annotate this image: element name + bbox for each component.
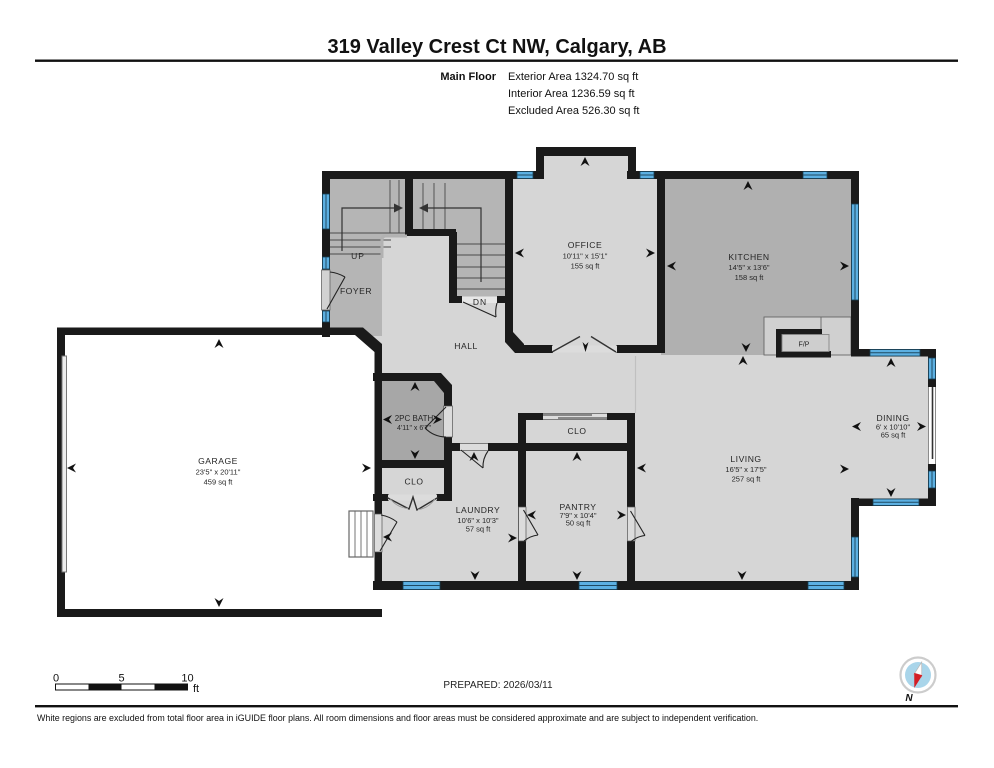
svg-text:FOYER: FOYER — [340, 286, 372, 296]
svg-text:LAUNDRY: LAUNDRY — [456, 505, 500, 515]
svg-text:10'11" x 15'1": 10'11" x 15'1" — [563, 252, 608, 261]
svg-text:319 Valley Crest Ct NW, Calgar: 319 Valley Crest Ct NW, Calgary, AB — [327, 36, 666, 58]
svg-text:DINING: DINING — [876, 413, 909, 423]
svg-text:459 sq ft: 459 sq ft — [204, 478, 234, 487]
svg-text:23'5" x 20'11": 23'5" x 20'11" — [196, 468, 241, 477]
svg-text:Exterior Area 1324.70 sq ft: Exterior Area 1324.70 sq ft — [508, 71, 638, 83]
svg-text:White regions are excluded fro: White regions are excluded from total fl… — [37, 713, 758, 723]
svg-text:10: 10 — [181, 673, 193, 685]
svg-text:Main Floor: Main Floor — [440, 71, 496, 83]
svg-text:CLO: CLO — [405, 477, 424, 487]
svg-text:0: 0 — [53, 673, 59, 685]
svg-text:HALL: HALL — [454, 341, 478, 351]
svg-text:5: 5 — [118, 673, 124, 685]
svg-text:PREPARED: 2026/03/11: PREPARED: 2026/03/11 — [443, 680, 553, 691]
svg-text:ft: ft — [193, 683, 199, 695]
svg-text:16'5" x 17'5": 16'5" x 17'5" — [725, 465, 766, 474]
svg-text:65 sq ft: 65 sq ft — [881, 431, 907, 440]
svg-text:N: N — [905, 693, 913, 704]
svg-text:14'5" x 13'6": 14'5" x 13'6" — [728, 263, 769, 272]
svg-text:CLO: CLO — [568, 426, 587, 436]
svg-text:155 sq ft: 155 sq ft — [571, 262, 601, 271]
svg-text:4'11" x 6'7": 4'11" x 6'7" — [397, 425, 431, 432]
svg-text:OFFICE: OFFICE — [568, 240, 603, 250]
svg-text:GARAGE: GARAGE — [198, 456, 238, 466]
svg-text:57 sq ft: 57 sq ft — [466, 525, 492, 534]
svg-text:50 sq ft: 50 sq ft — [566, 519, 592, 528]
svg-text:KITCHEN: KITCHEN — [728, 252, 769, 262]
svg-text:2PC BATH: 2PC BATH — [395, 414, 434, 423]
svg-text:LIVING: LIVING — [730, 454, 761, 464]
svg-text:Interior Area 1236.59 sq ft: Interior Area 1236.59 sq ft — [508, 88, 635, 100]
svg-text:UP: UP — [351, 251, 365, 261]
svg-text:158 sq ft: 158 sq ft — [735, 273, 765, 282]
svg-text:Excluded Area 526.30 sq ft: Excluded Area 526.30 sq ft — [508, 105, 639, 117]
svg-text:DN: DN — [473, 297, 487, 307]
svg-text:F/P: F/P — [799, 342, 810, 349]
svg-text:257 sq ft: 257 sq ft — [732, 475, 762, 484]
